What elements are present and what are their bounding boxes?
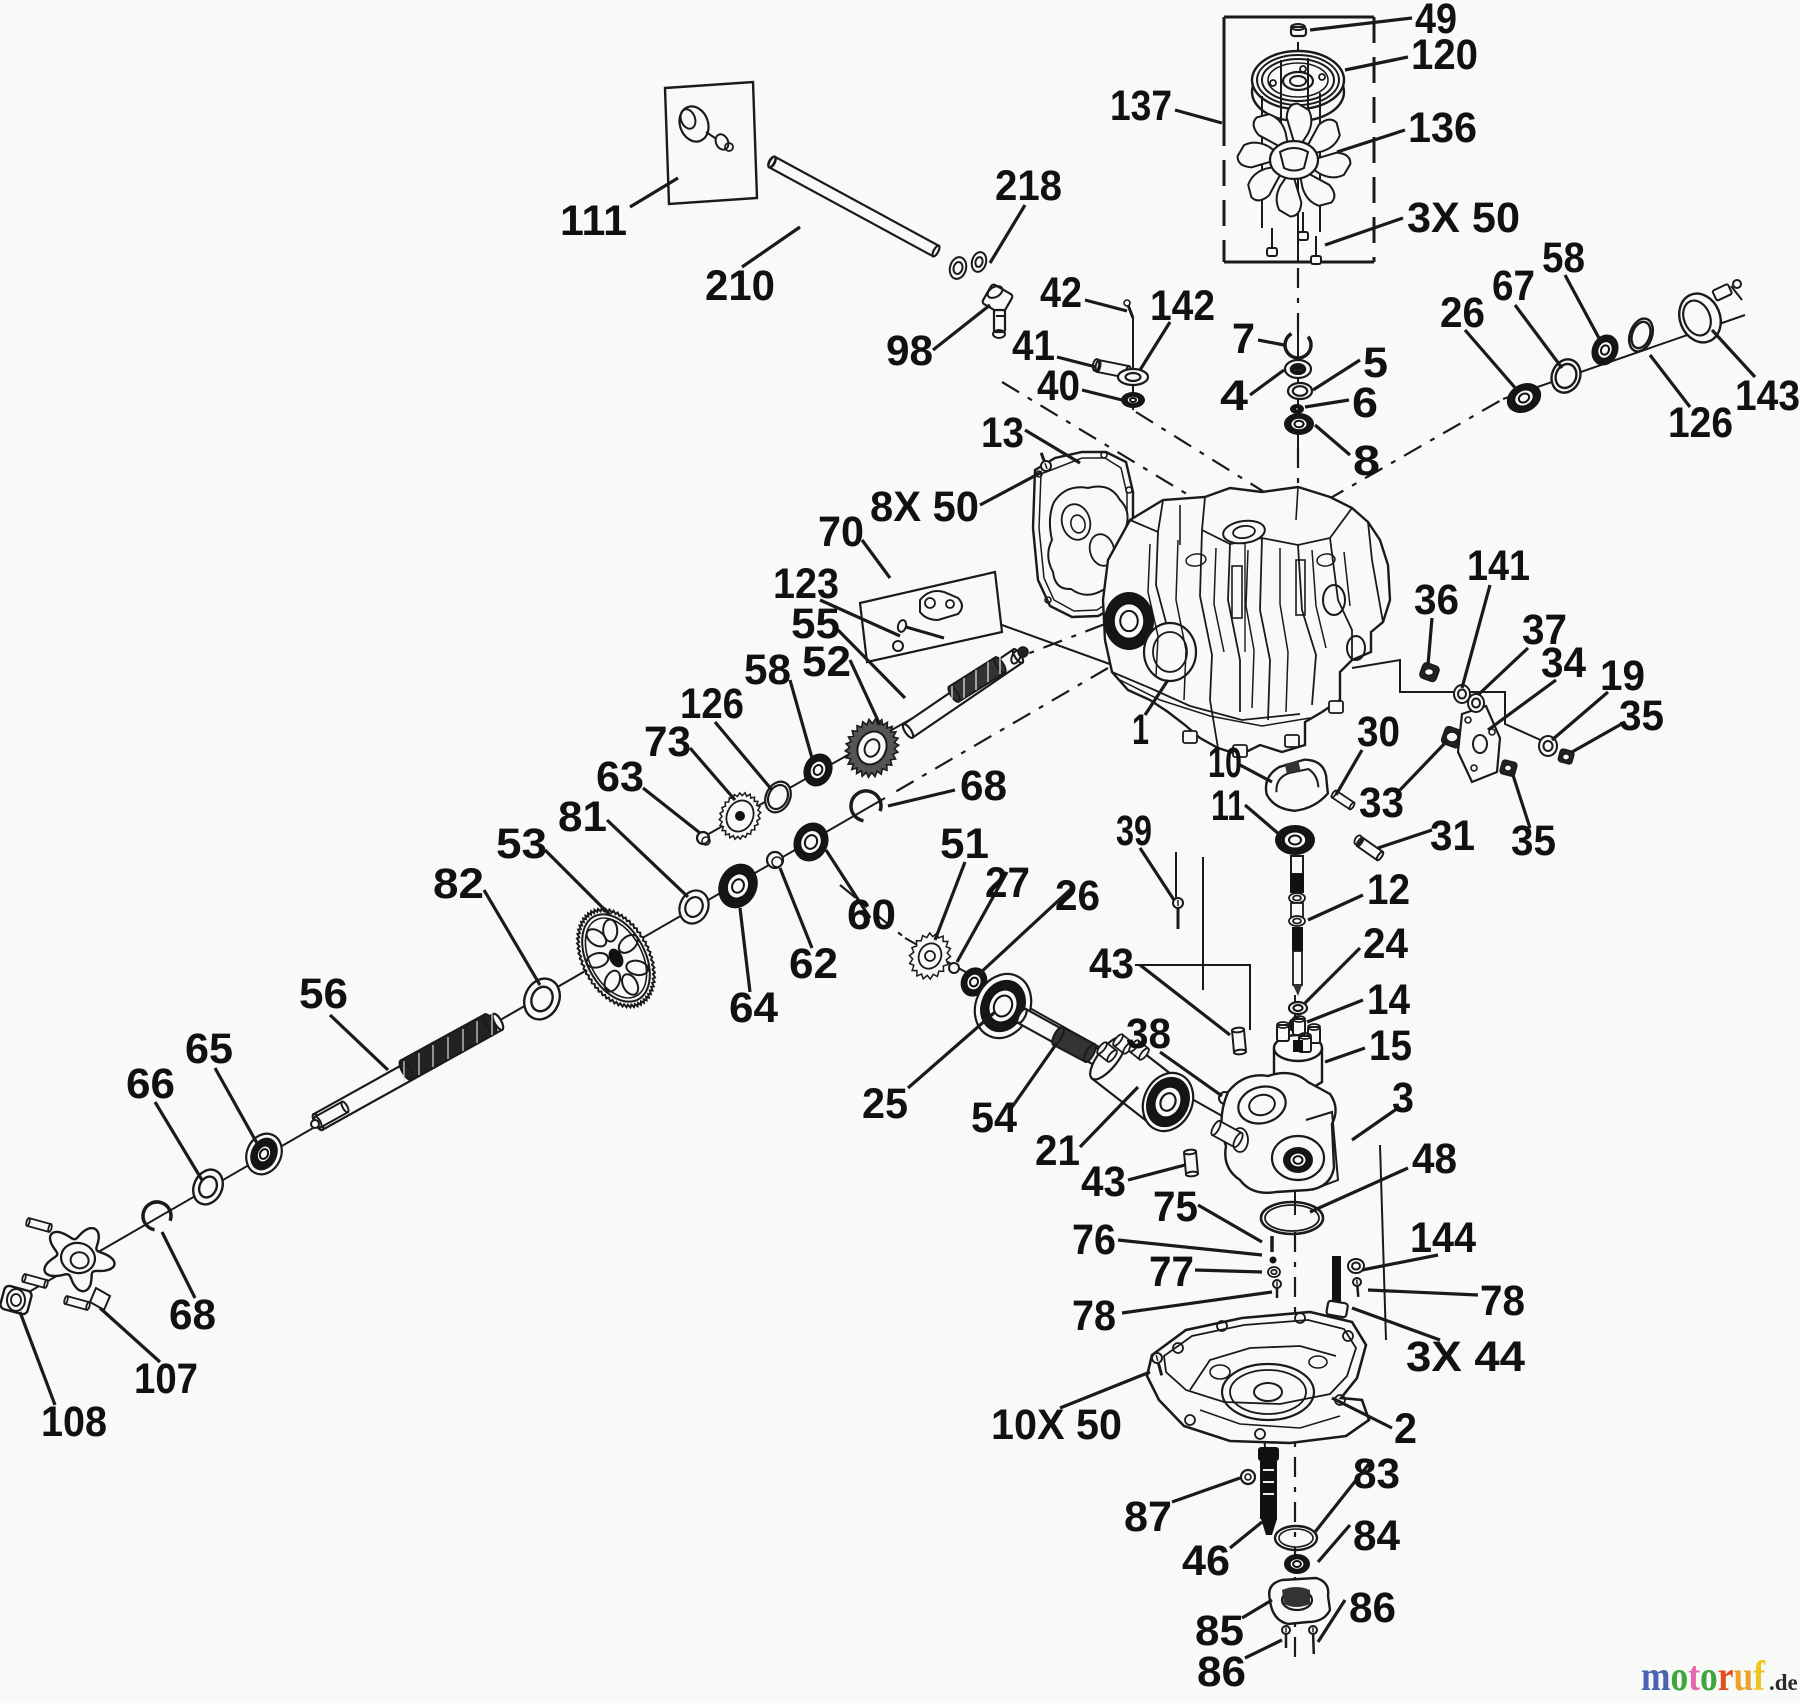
svg-text:108: 108 [41,1398,107,1446]
svg-text:65: 65 [185,1025,233,1073]
svg-text:39: 39 [1116,807,1152,855]
svg-text:.de: .de [1769,1670,1798,1695]
svg-text:98: 98 [886,327,933,375]
svg-text:68: 68 [169,1291,216,1339]
svg-text:30: 30 [1357,708,1400,756]
svg-text:68: 68 [960,762,1007,810]
svg-text:120: 120 [1411,31,1478,79]
svg-text:3: 3 [1392,1074,1414,1122]
svg-text:111: 111 [560,197,627,245]
svg-text:83: 83 [1353,1450,1400,1498]
svg-text:2: 2 [1394,1405,1417,1453]
svg-text:35: 35 [1619,692,1664,740]
svg-text:26: 26 [1440,289,1485,337]
svg-text:87: 87 [1124,1493,1172,1541]
svg-text:21: 21 [1035,1127,1080,1175]
svg-text:10: 10 [1208,739,1242,787]
svg-text:40: 40 [1037,362,1080,410]
svg-text:4: 4 [1220,372,1248,420]
svg-text:76: 76 [1072,1216,1116,1264]
svg-text:38: 38 [1126,1010,1171,1058]
svg-text:6: 6 [1352,379,1378,427]
svg-text:13: 13 [981,409,1024,457]
svg-text:43: 43 [1089,940,1134,988]
svg-text:42: 42 [1040,269,1082,317]
svg-text:48: 48 [1412,1135,1457,1183]
svg-text:46: 46 [1182,1537,1230,1585]
svg-text:58: 58 [1542,234,1585,282]
svg-text:12: 12 [1367,866,1410,914]
svg-text:7: 7 [1232,315,1255,363]
svg-text:11: 11 [1211,782,1245,830]
svg-text:73: 73 [644,718,691,766]
svg-text:43: 43 [1081,1158,1126,1206]
svg-text:82: 82 [433,860,484,908]
svg-text:52: 52 [802,638,851,686]
svg-text:66: 66 [126,1060,175,1108]
svg-text:33: 33 [1359,779,1404,827]
svg-text:64: 64 [729,984,778,1032]
svg-text:142: 142 [1150,282,1215,330]
svg-text:143: 143 [1735,372,1800,420]
svg-text:3X 44: 3X 44 [1406,1333,1525,1381]
svg-text:35: 35 [1511,817,1556,865]
svg-text:136: 136 [1408,104,1477,152]
svg-text:8X 50: 8X 50 [870,483,979,531]
svg-text:24: 24 [1363,920,1408,968]
svg-text:78: 78 [1072,1292,1116,1340]
svg-text:3X 50: 3X 50 [1407,194,1520,242]
svg-text:34: 34 [1541,639,1586,687]
svg-text:126: 126 [1668,399,1733,447]
svg-text:36: 36 [1414,576,1459,624]
svg-text:8: 8 [1353,437,1380,485]
svg-text:56: 56 [299,970,348,1018]
svg-text:1: 1 [1132,706,1149,754]
svg-text:25: 25 [862,1080,908,1128]
svg-text:motoruf: motoruf [1641,1654,1766,1700]
svg-text:78: 78 [1480,1277,1525,1325]
svg-text:141: 141 [1467,542,1530,590]
svg-text:107: 107 [134,1355,198,1403]
svg-text:75: 75 [1153,1183,1198,1231]
svg-text:67: 67 [1492,262,1535,310]
svg-text:86: 86 [1349,1584,1396,1632]
svg-text:86: 86 [1197,1648,1246,1696]
svg-text:210: 210 [705,262,775,310]
svg-text:15: 15 [1369,1022,1412,1070]
svg-text:58: 58 [744,646,791,694]
svg-text:60: 60 [847,891,896,939]
svg-text:51: 51 [940,820,989,868]
svg-text:137: 137 [1110,82,1172,130]
svg-text:26: 26 [1055,872,1100,920]
svg-text:31: 31 [1430,812,1475,860]
svg-text:14: 14 [1367,976,1410,1024]
svg-text:53: 53 [496,820,547,868]
svg-text:62: 62 [789,940,838,988]
svg-text:10X 50: 10X 50 [991,1401,1122,1449]
svg-text:70: 70 [818,508,864,556]
svg-text:81: 81 [558,793,607,841]
svg-text:27: 27 [985,859,1030,907]
svg-text:54: 54 [971,1094,1017,1142]
svg-text:77: 77 [1149,1248,1194,1296]
svg-text:218: 218 [995,162,1062,210]
svg-text:144: 144 [1410,1214,1476,1262]
svg-text:84: 84 [1353,1512,1400,1560]
